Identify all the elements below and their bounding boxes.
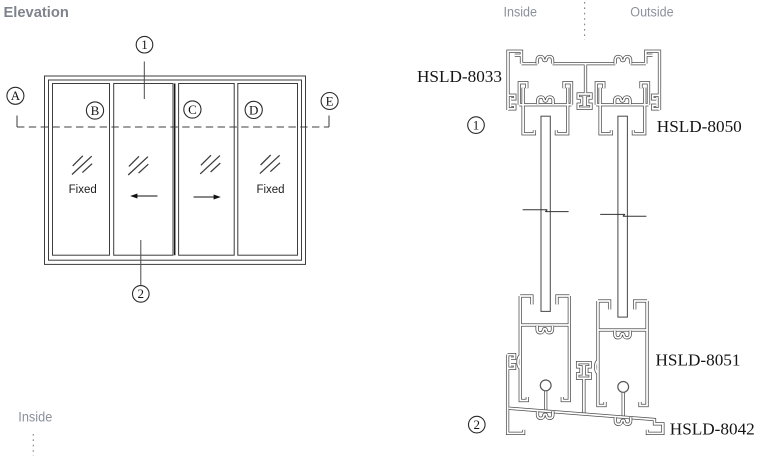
svg-text:Elevation: Elevation — [4, 5, 69, 21]
svg-text:HSLD-8033: HSLD-8033 — [417, 67, 502, 86]
svg-text:Inside: Inside — [18, 409, 52, 425]
svg-text:1: 1 — [141, 37, 148, 52]
svg-text:Inside: Inside — [504, 4, 538, 20]
svg-text:C: C — [188, 102, 197, 117]
svg-text:HSLD-8042: HSLD-8042 — [670, 419, 755, 438]
svg-text:Fixed: Fixed — [256, 184, 284, 196]
svg-text:A: A — [11, 88, 21, 103]
svg-text:Outside: Outside — [630, 4, 673, 20]
svg-text:B: B — [91, 103, 100, 118]
svg-text:2: 2 — [138, 286, 145, 301]
svg-text:1: 1 — [473, 117, 480, 132]
svg-text:HSLD-8051: HSLD-8051 — [656, 351, 741, 370]
svg-text:D: D — [249, 102, 258, 117]
svg-text:E: E — [326, 93, 334, 108]
svg-text:Fixed: Fixed — [69, 184, 97, 196]
svg-text:HSLD-8050: HSLD-8050 — [657, 117, 742, 136]
svg-text:2: 2 — [474, 417, 481, 432]
